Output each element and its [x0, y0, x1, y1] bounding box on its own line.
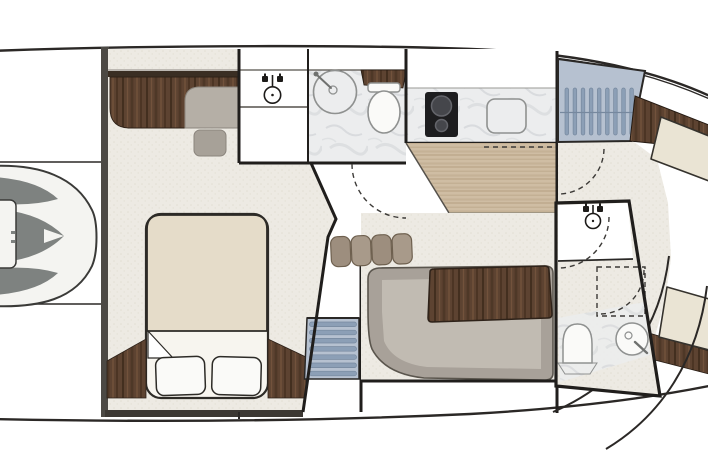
shower-head: [314, 72, 319, 77]
faucet-dot: [592, 220, 594, 222]
salon: [330, 213, 557, 381]
tap-right: [277, 76, 283, 82]
tap-right-nub: [279, 74, 281, 77]
walnut-dining-table: [428, 266, 552, 322]
faucet-dot: [271, 94, 274, 97]
step-tread: [589, 88, 593, 135]
bed-duvet: [147, 215, 267, 331]
bow-hatch-tick: [11, 240, 15, 243]
tap-right: [597, 206, 603, 212]
step-tread: [565, 88, 569, 135]
cabin-trim-strip: [108, 71, 239, 77]
tap-left-nub: [585, 204, 587, 207]
tap-left: [262, 76, 268, 82]
seat-cushion: [392, 233, 413, 264]
toilet-bowl: [368, 91, 400, 133]
step-tread: [597, 88, 601, 135]
seat-cushion: [330, 236, 351, 267]
pillow: [212, 356, 262, 395]
stair-tread: [310, 355, 357, 360]
companionway-step-treads: [565, 88, 633, 135]
galley-sink: [487, 99, 526, 133]
tap-right-nub: [599, 204, 601, 207]
cabin-stairs-treads: [310, 322, 357, 376]
stair-tread: [310, 371, 357, 376]
seat-cushion: [371, 234, 392, 265]
step-tread: [622, 88, 626, 135]
double-bed: [146, 214, 268, 398]
floorplan-canvas: [0, 0, 708, 472]
forward-head: [239, 49, 406, 163]
step-tread: [573, 88, 577, 135]
step-tread: [614, 88, 618, 135]
pillow: [155, 356, 205, 396]
cabin-aft-wall-band: [105, 410, 303, 417]
step-tread: [606, 88, 610, 135]
toilet: [368, 83, 400, 133]
tap-left: [583, 206, 589, 212]
yacht-floorplan: [0, 0, 708, 472]
stair-tread: [310, 330, 357, 335]
stair-tread: [310, 363, 357, 368]
seat-cushion: [351, 235, 372, 266]
stair-tread: [310, 338, 357, 343]
round-shower: [616, 323, 648, 355]
desk-seat: [185, 87, 238, 128]
burner-large: [432, 96, 452, 116]
tap-left-nub: [264, 74, 266, 77]
round-shower: [314, 71, 357, 114]
stair-tread: [310, 347, 357, 352]
burner-small: [436, 120, 448, 132]
step-tread: [581, 88, 585, 135]
two-burner-cooktop: [425, 92, 458, 137]
bow-hatch-tick: [11, 231, 15, 234]
stool: [194, 130, 226, 156]
toilet-dome: [563, 324, 592, 363]
